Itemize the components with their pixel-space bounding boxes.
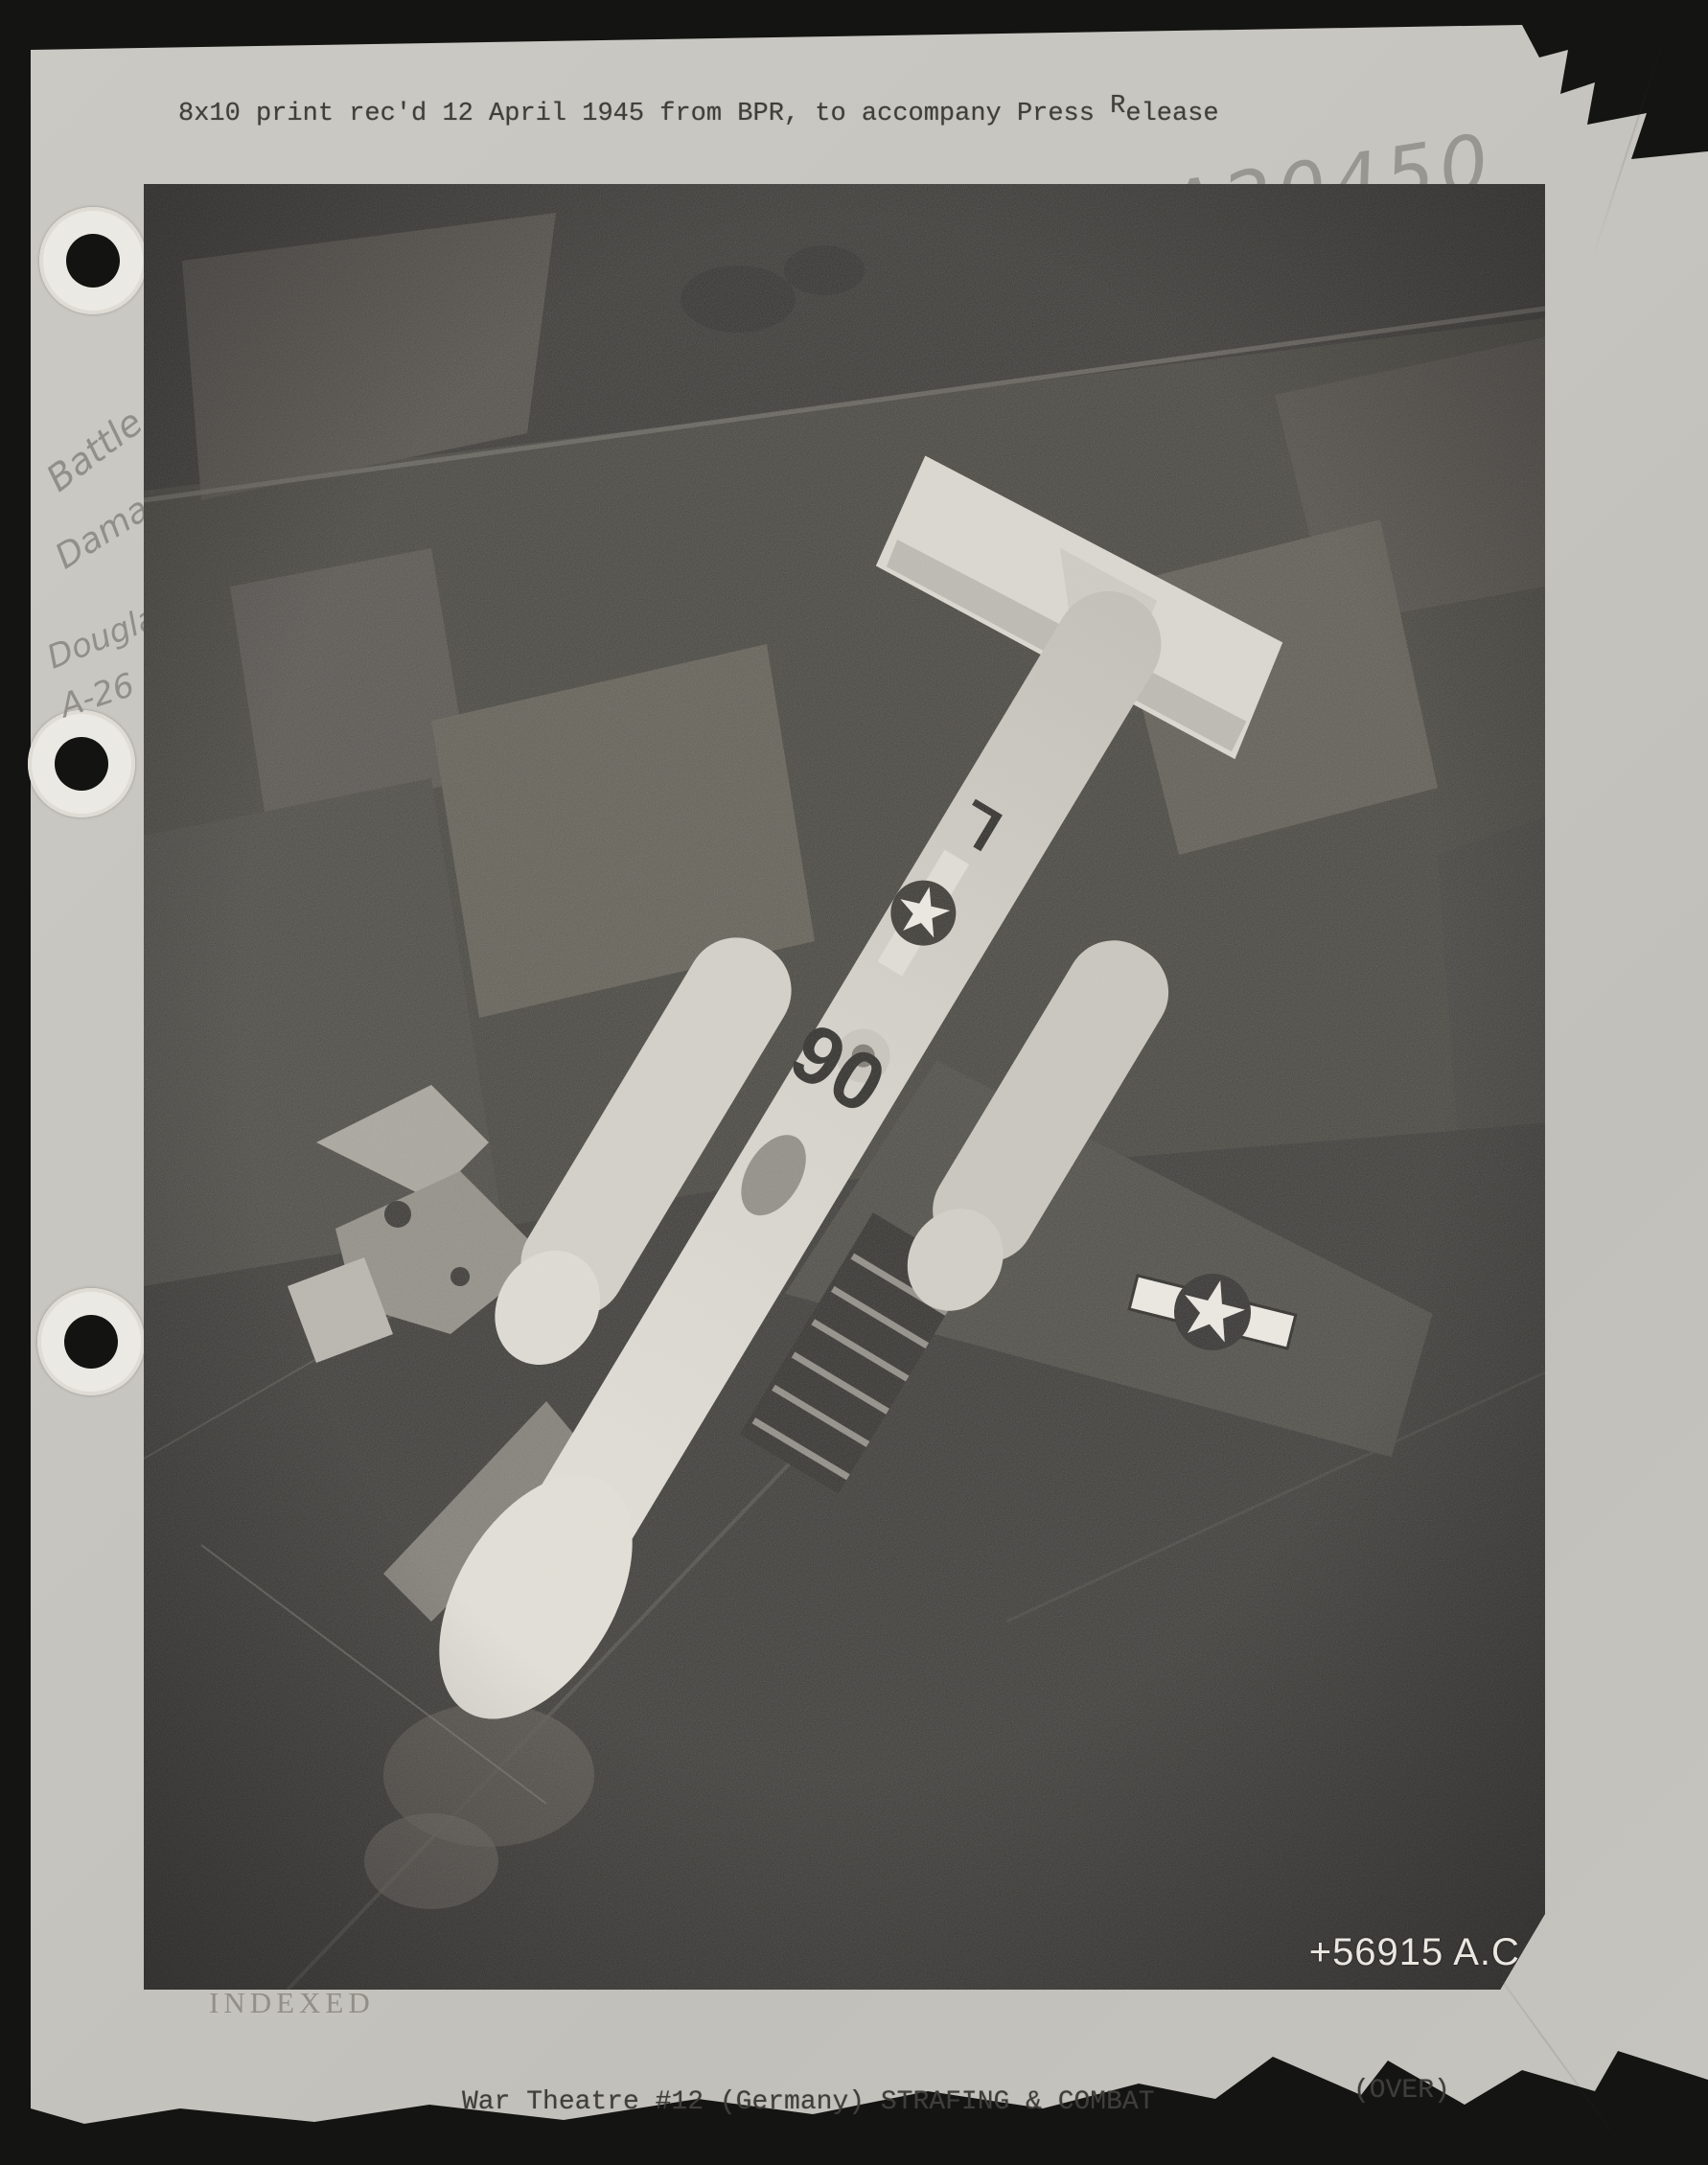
typed-line1-text-end: elease <box>1125 100 1218 128</box>
typed-over-note: (OVER) <box>1353 2076 1450 2106</box>
vignette <box>144 184 1545 1990</box>
photo-id-stamp: +56915 A.C. <box>1309 1931 1532 1974</box>
punch-hole-top <box>39 207 147 314</box>
punch-hole-bottom <box>37 1288 145 1395</box>
aerial-photograph: 06 L +56915 A. <box>144 184 1545 1990</box>
typed-footer-caption: War Theatre #12 (Germany) STRAFING & COM… <box>462 2087 1155 2117</box>
indexed-stamp: INDEXED <box>209 1986 375 2020</box>
archival-scan: 8x10 print rec'd 12 April 1945 from BPR,… <box>0 0 1708 2165</box>
punch-hole-bore <box>64 1315 118 1369</box>
typed-line1-text: 8x10 print rec'd 12 April 1945 from BPR,… <box>178 100 1110 128</box>
photo-artwork: 06 L <box>144 184 1545 1990</box>
punch-hole-bore <box>55 737 108 791</box>
typed-header-line1: 8x10 print rec'd 12 April 1945 from BPR,… <box>178 98 1219 130</box>
punch-hole-middle <box>28 710 135 818</box>
punch-hole-bore <box>66 234 120 288</box>
typed-line1-raised-letter: R <box>1110 90 1125 123</box>
